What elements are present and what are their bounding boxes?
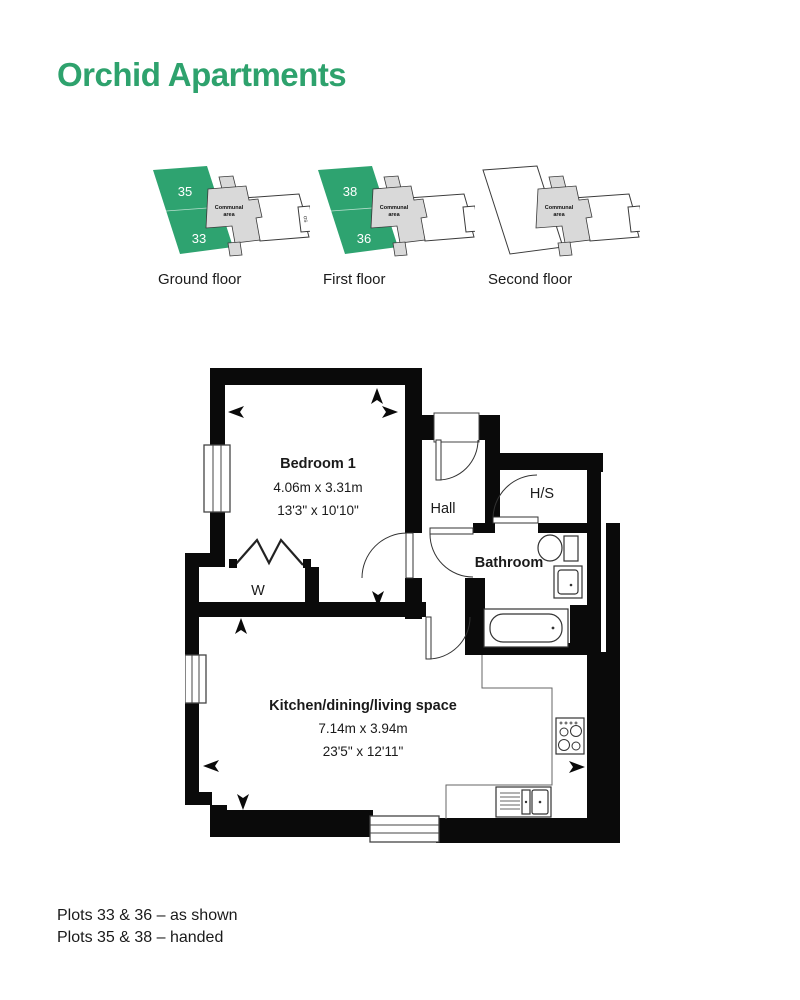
locator-ground-floor: OS Communal area 35 33 Ground floor	[140, 162, 310, 288]
floor-plan-drawing: Bedroom 1 4.06m x 3.31m 13'3" x 10'10" H…	[185, 360, 625, 850]
locator-second-floor: Communal area Second floor	[470, 162, 640, 288]
communal-label-line1: Communal	[380, 205, 409, 211]
basin-icon	[554, 566, 582, 598]
second-floor-keyplan: Communal area	[470, 162, 640, 267]
kitchen-label: Kitchen/dining/living space	[269, 698, 457, 714]
floor-plan: Bedroom 1 4.06m x 3.31m 13'3" x 10'10" H…	[185, 360, 625, 850]
kitchen-sink-icon	[496, 787, 551, 817]
locator-first-floor: Communal area 38 36 First floor	[305, 162, 475, 288]
toilet-icon	[538, 535, 578, 561]
bedroom-window	[204, 445, 230, 512]
kitchen-bottom-window	[370, 816, 439, 842]
walls	[185, 368, 620, 843]
communal-label-line2: area	[553, 212, 565, 218]
communal-label-line1: Communal	[545, 205, 574, 211]
kitchen-door	[426, 617, 470, 659]
bedroom-door	[362, 533, 413, 578]
communal-label-line2: area	[223, 212, 235, 218]
hs-label: H/S	[530, 486, 554, 502]
bedroom-dim-metric: 4.06m x 3.31m	[273, 480, 362, 495]
arrow-up-icon	[371, 388, 383, 404]
arrow-up-icon	[235, 618, 247, 634]
plot-number: 36	[357, 231, 371, 246]
wardrobe-label: W	[251, 583, 265, 599]
entrance-door	[434, 413, 479, 480]
plot-note-line2: Plots 35 & 38 – handed	[57, 927, 238, 949]
arrow-down-icon	[237, 794, 249, 810]
plot-notes: Plots 33 & 36 – as shown Plots 35 & 38 –…	[57, 905, 238, 949]
bathroom-label: Bathroom	[475, 555, 543, 571]
bedroom-label: Bedroom 1	[280, 456, 356, 472]
arrow-left-icon	[203, 760, 219, 772]
floor-label: First floor	[305, 271, 475, 288]
communal-label-line1: Communal	[215, 205, 244, 211]
kitchen-dim-imperial: 23'5" x 12'11"	[323, 744, 404, 759]
ground-floor-keyplan: OS Communal area 35 33	[140, 162, 310, 267]
plot-number: 38	[343, 184, 357, 199]
plot-number: 35	[178, 184, 192, 199]
wardrobe-bifold-doors	[229, 540, 311, 568]
plot-note-line1: Plots 33 & 36 – as shown	[57, 905, 238, 927]
communal-label-line2: area	[388, 212, 400, 218]
arrow-left-icon	[228, 406, 244, 418]
bathroom-door	[430, 528, 473, 577]
kitchen-side-window	[185, 655, 206, 703]
bathtub-icon	[484, 609, 568, 647]
arrow-right-icon	[569, 761, 585, 773]
kitchen-dim-metric: 7.14m x 3.94m	[318, 721, 407, 736]
first-floor-keyplan: Communal area 38 36	[305, 162, 475, 267]
bedroom-dim-imperial: 13'3" x 10'10"	[277, 503, 359, 518]
hall-label: Hall	[431, 501, 456, 517]
floor-label: Ground floor	[140, 271, 310, 288]
hob-icon	[556, 718, 584, 754]
floor-label: Second floor	[470, 271, 640, 288]
page-title: Orchid Apartments	[57, 56, 346, 94]
plot-number: 33	[192, 231, 206, 246]
fixtures	[446, 535, 584, 819]
arrow-right-icon	[382, 406, 398, 418]
